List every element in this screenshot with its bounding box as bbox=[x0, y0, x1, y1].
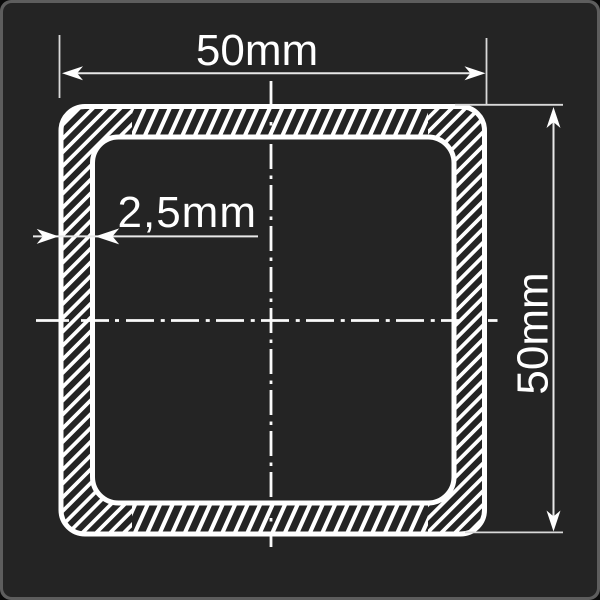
svg-text:2,5mm: 2,5mm bbox=[118, 188, 257, 237]
svg-text:50mm: 50mm bbox=[509, 272, 558, 394]
svg-text:50mm: 50mm bbox=[196, 26, 318, 75]
